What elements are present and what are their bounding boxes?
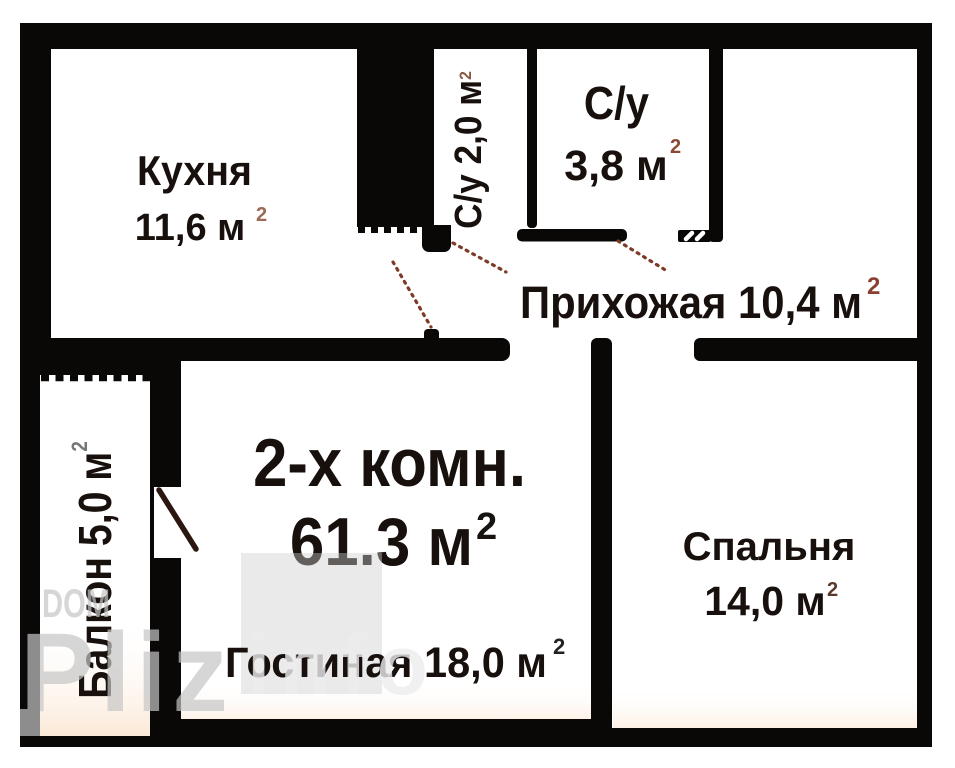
svg-text:Кухня: Кухня (137, 147, 252, 194)
svg-text:14,0 м: 14,0 м (704, 578, 826, 624)
svg-text:2: 2 (256, 204, 267, 226)
svg-text:С/у: С/у (584, 78, 650, 129)
svg-text:3,8 м: 3,8 м (564, 142, 668, 190)
svg-text:11,6 м: 11,6 м (135, 207, 246, 249)
svg-text:С/у 2,0 м2: С/у 2,0 м2 (447, 71, 490, 229)
svg-text:Pliz: Pliz (20, 610, 233, 735)
svg-text:info: info (247, 618, 437, 712)
svg-text:2: 2 (553, 634, 565, 659)
svg-text:2: 2 (476, 506, 497, 548)
svg-text:2: 2 (867, 273, 880, 300)
svg-text:2-х комн.: 2-х комн. (253, 424, 526, 501)
svg-text:Прихожая 10,4 м: Прихожая 10,4 м (520, 279, 862, 329)
svg-text:Спальня: Спальня (683, 525, 856, 569)
svg-text:2: 2 (827, 579, 838, 601)
svg-text:2: 2 (670, 136, 681, 158)
